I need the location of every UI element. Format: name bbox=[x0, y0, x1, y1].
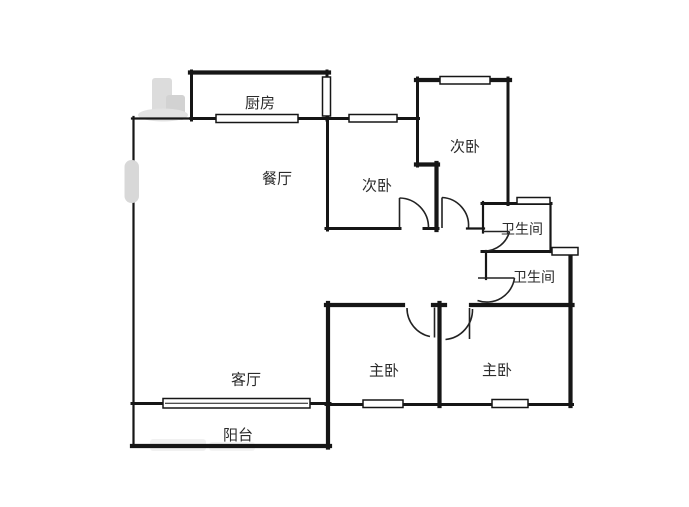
bedroom2b-window bbox=[440, 77, 490, 85]
room-label-master-left: 主卧 bbox=[369, 363, 399, 380]
bedroom2a-door-arc bbox=[400, 198, 429, 228]
room-labels: 厨房 餐厅 次卧 次卧 卫生间 卫生间 主卧 主卧 客厅 阳台 bbox=[223, 95, 555, 444]
room-label-bath-upper: 卫生间 bbox=[501, 221, 543, 237]
room-label-master-right: 主卧 bbox=[482, 362, 512, 379]
room-label-kitchen: 厨房 bbox=[245, 95, 275, 112]
watermark-smudges bbox=[138, 78, 255, 451]
room-label-living: 客厅 bbox=[231, 372, 261, 389]
master-left-window bbox=[363, 400, 403, 408]
bathroom-lower-window bbox=[552, 248, 578, 256]
room-label-bath-lower: 卫生间 bbox=[513, 269, 555, 285]
room-label-bedroom2-right: 次卧 bbox=[450, 139, 480, 156]
master-right-window bbox=[492, 400, 528, 408]
kitchen-side-window bbox=[323, 77, 331, 116]
windows bbox=[163, 77, 578, 409]
doors bbox=[400, 198, 515, 340]
bedroom2b-door-arc bbox=[442, 198, 469, 228]
floor-plan-svg: 厨房 餐厅 次卧 次卧 卫生间 卫生间 主卧 主卧 客厅 阳台 bbox=[0, 0, 689, 507]
kitchen-window bbox=[216, 115, 298, 123]
bathroom-upper-window bbox=[517, 198, 550, 205]
floor-plan-image: 厨房 餐厅 次卧 次卧 卫生间 卫生间 主卧 主卧 客厅 阳台 bbox=[0, 0, 689, 507]
bedroom2a-window bbox=[349, 115, 397, 123]
room-label-dining: 餐厅 bbox=[262, 171, 292, 188]
bathroom-lower-door-arc bbox=[478, 278, 515, 302]
master-left-door-arc bbox=[407, 308, 430, 337]
room-label-balcony: 阳台 bbox=[223, 427, 253, 444]
master-right-door-arc bbox=[446, 309, 473, 340]
room-label-bedroom2-left: 次卧 bbox=[362, 178, 392, 195]
watermark-blob-left-wall bbox=[125, 160, 140, 203]
walls bbox=[132, 71, 573, 448]
